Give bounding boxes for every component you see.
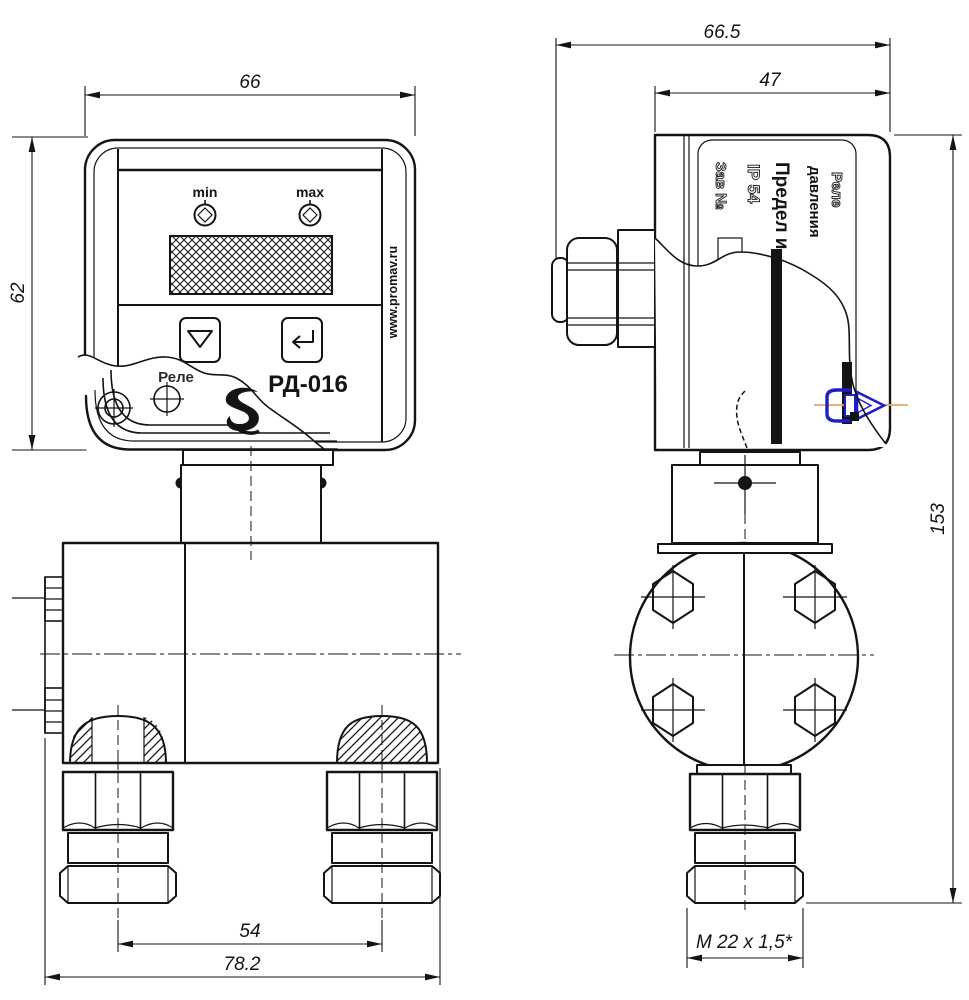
- display-window: [170, 236, 332, 294]
- side-view: 66.5 47 Реле давления Предел и IP 54 Зав…: [552, 22, 962, 968]
- front-panel: min max РД-016 www.promav.ru: [170, 184, 400, 398]
- side-fitting: [687, 765, 803, 915]
- dim-front-height-value: 62: [8, 282, 29, 304]
- max-label: max: [296, 184, 324, 200]
- dim-side-body-value: 47: [759, 70, 782, 91]
- model-label: РД-016: [268, 371, 348, 398]
- enter-button: [282, 318, 322, 362]
- min-indicator-icon: [195, 200, 216, 226]
- dim-front-width-value: 66: [239, 72, 261, 93]
- dim-overall-width-value: 78.2: [224, 954, 261, 975]
- front-right-fitting: [324, 758, 440, 918]
- dimension-front-height: 62: [8, 137, 92, 450]
- dimension-thread: M 22 x 1,5*: [687, 908, 803, 968]
- dimension-side-body-width: 47: [655, 70, 890, 132]
- bolt-hex: [783, 678, 847, 742]
- nameplate-line4: IP 54: [744, 164, 763, 204]
- dimension-overall-width: 78.2: [45, 738, 440, 985]
- drawing-canvas: 66 62 min max: [0, 0, 969, 1000]
- front-view: 66 62 min max: [8, 72, 461, 985]
- front-body-block: [12, 543, 461, 770]
- down-button-icon: [188, 331, 212, 347]
- bolt-hex: [641, 678, 705, 742]
- technical-drawing: 66 62 min max: [0, 0, 969, 1000]
- side-nameplate: Реле давления Предел и IP 54 Зав №: [712, 162, 845, 262]
- cable-gland: [552, 230, 655, 347]
- side-neck: [672, 452, 818, 548]
- enter-button-icon: [293, 330, 313, 348]
- dim-side-overall-value: 66.5: [704, 22, 741, 43]
- dim-thread-value: M 22 x 1,5*: [696, 932, 793, 953]
- max-indicator-icon: [300, 200, 321, 226]
- min-label: min: [193, 184, 218, 200]
- nameplate-line5: Зав №: [712, 162, 729, 210]
- dim-port-spacing-value: 54: [239, 921, 260, 942]
- terminal-strip: [12, 577, 63, 733]
- wire-1: [771, 249, 782, 444]
- bolt-hex: [783, 565, 847, 629]
- watermark-label: www.promav.ru: [386, 246, 400, 339]
- nameplate-line1: Реле: [828, 172, 845, 208]
- diaphragm-housing: [614, 543, 874, 774]
- dimension-front-width: 66: [85, 72, 415, 136]
- dimension-port-spacing: 54: [118, 920, 382, 952]
- bolt-hex: [641, 565, 705, 629]
- brand-partial-label: Реле: [158, 369, 194, 386]
- down-button: [180, 318, 220, 362]
- front-left-fitting: [60, 758, 176, 918]
- nameplate-line2: давления: [806, 166, 823, 238]
- dim-side-height-value: 153: [928, 503, 949, 535]
- dimension-side-height: 153: [806, 135, 962, 903]
- nameplate-line3: Предел и: [771, 162, 792, 250]
